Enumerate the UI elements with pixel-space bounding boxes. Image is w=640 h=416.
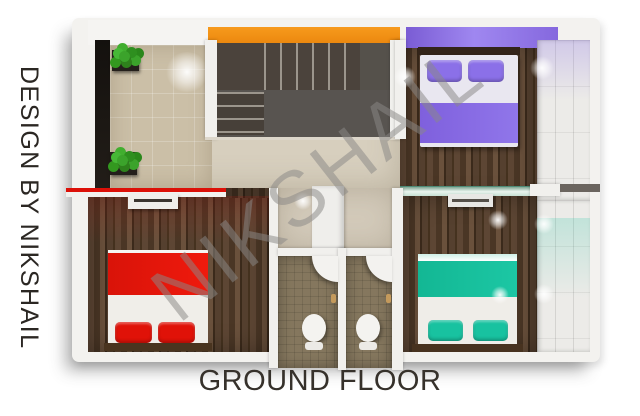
bathroom-divider-wall — [338, 248, 346, 370]
glass-end-post — [530, 184, 560, 196]
floor-label: GROUND FLOOR — [0, 365, 640, 398]
stair-upper-treads — [264, 43, 360, 90]
teal-room-light — [534, 214, 554, 234]
dresser-slot — [134, 199, 172, 202]
floor-plan-render: NIKSHAIL DESIGN BY NIKSHAIL GROUND FLOOR — [0, 0, 640, 416]
side-caption: DESIGN BY NIKSHAIL — [14, 66, 43, 350]
teal-room-light — [488, 210, 508, 230]
toilet-bowl — [356, 314, 380, 342]
plant-leaves-icon — [117, 155, 128, 166]
toilet-tank — [359, 342, 377, 350]
door-handle — [331, 294, 336, 303]
foyer-dark-wall — [95, 40, 110, 188]
teal-bed-base — [412, 344, 523, 352]
teal-bed — [418, 254, 517, 369]
plant-leaves-icon — [119, 51, 130, 62]
media-unit-slot — [452, 199, 489, 202]
teal-room-light — [534, 284, 554, 304]
purple-room-light — [530, 56, 554, 80]
teal-pillow — [473, 320, 508, 341]
red-pillow — [115, 322, 152, 343]
teal-room-light — [491, 286, 509, 304]
toilet-bowl — [302, 314, 326, 342]
teal-bed-headboard — [418, 254, 517, 261]
stair-wide-tread — [217, 43, 264, 90]
stair-lower-treads — [217, 92, 264, 135]
door-handle — [386, 294, 391, 303]
red-bed-base — [104, 343, 212, 351]
toilet-tank — [305, 342, 323, 350]
foyer-ceiling-light — [165, 52, 209, 92]
partition-dark-rail — [560, 184, 600, 192]
stair-left-wall — [205, 40, 217, 139]
teal-pillow — [428, 320, 463, 341]
red-room-dresser — [128, 194, 178, 209]
teal-media-unit — [448, 194, 493, 207]
teal-room-left-wall — [392, 188, 403, 370]
